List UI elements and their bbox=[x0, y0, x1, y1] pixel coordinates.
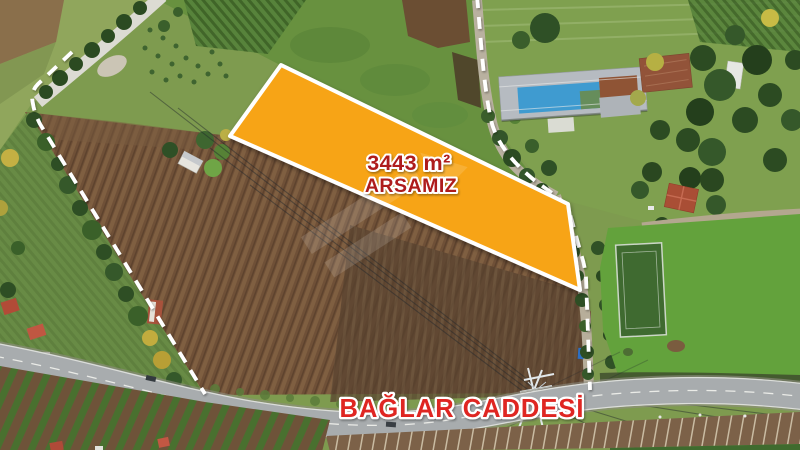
lawn-right bbox=[600, 214, 800, 400]
aerial-photo: 3443 m² ARSAMIZ BAĞLAR CADDESİ bbox=[0, 0, 800, 450]
white-shed bbox=[548, 117, 575, 133]
fenced-court bbox=[616, 243, 667, 337]
street-name-label: BAĞLAR CADDESİ bbox=[340, 394, 585, 423]
dirt-spot bbox=[667, 340, 685, 352]
aerial-photo-canvas: 3443 m² ARSAMIZ BAĞLAR CADDESİ bbox=[0, 0, 800, 450]
area-label: 3443 m² bbox=[367, 151, 451, 175]
big-tree bbox=[530, 13, 560, 43]
parcel-name-label: ARSAMIZ bbox=[365, 175, 457, 197]
